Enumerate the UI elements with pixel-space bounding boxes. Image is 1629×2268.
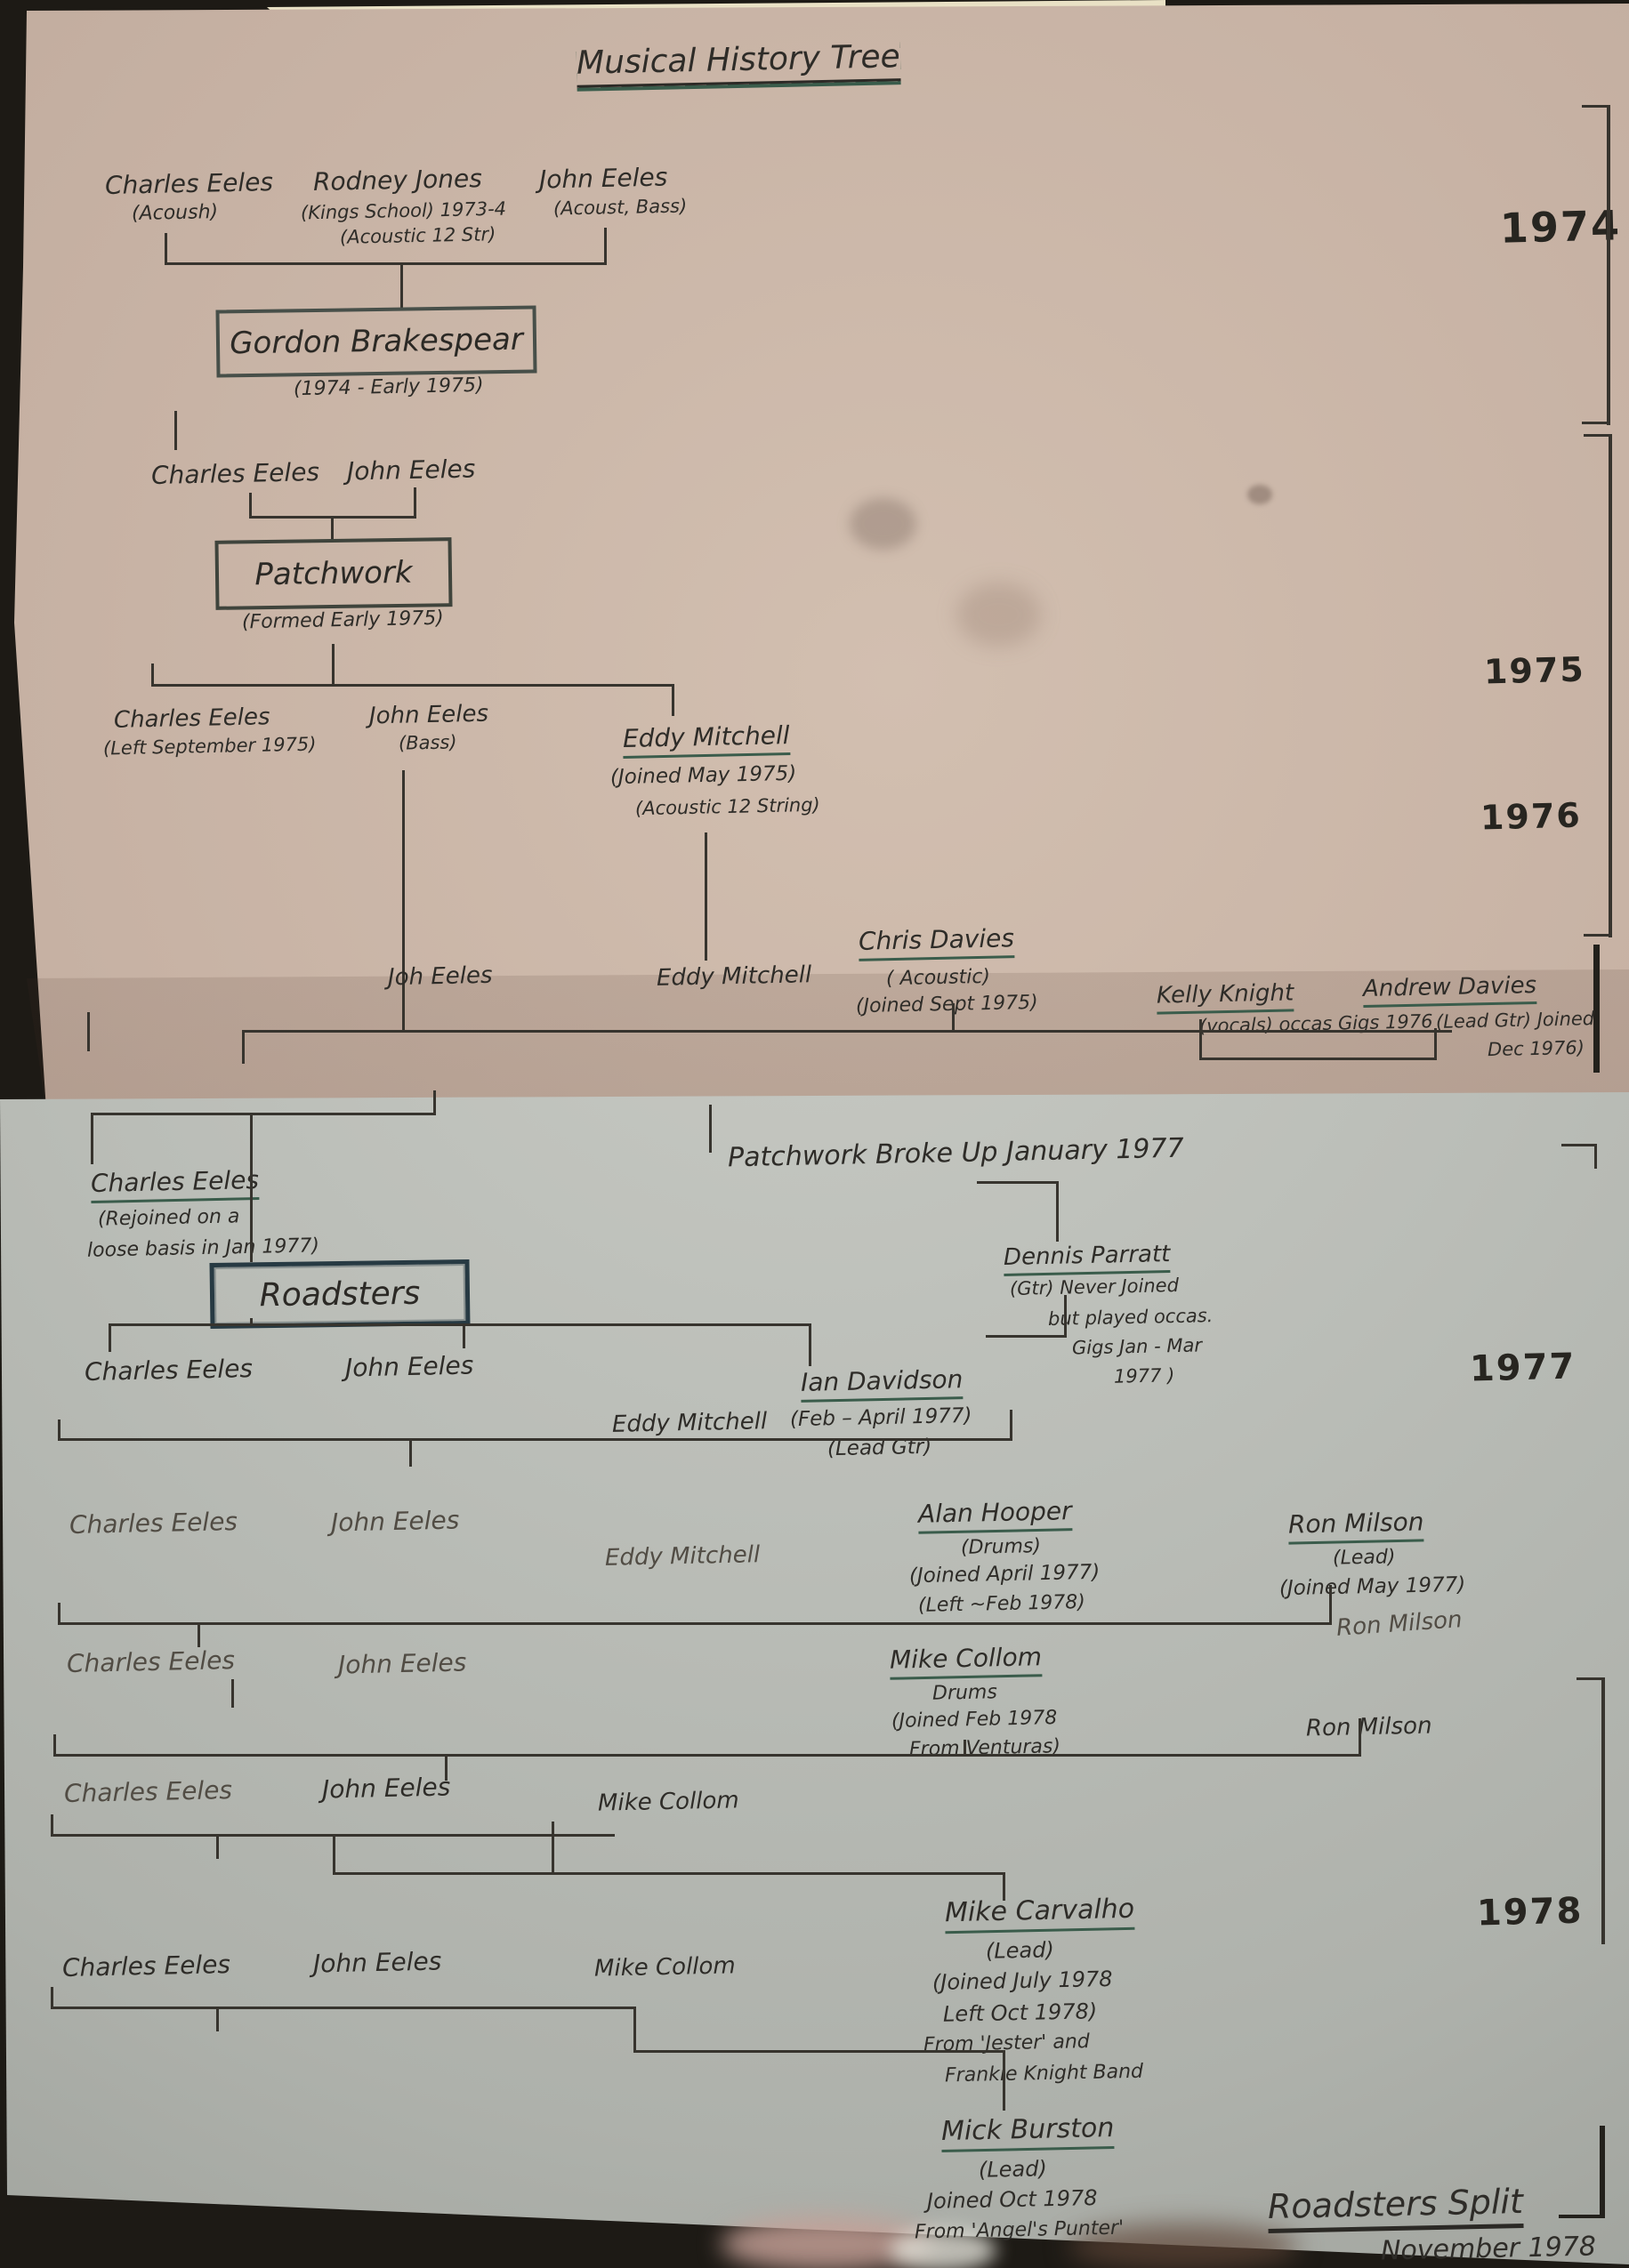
year-bracket — [1600, 2126, 1605, 2218]
connector-line — [333, 1872, 1005, 1875]
member-dennis: Dennis Parratt — [1004, 1242, 1171, 1271]
rowC-charles: Charles Eeles — [67, 1647, 236, 1678]
paper-stain — [1247, 485, 1272, 504]
member-rodney-1974: Rodney Jones — [313, 165, 482, 197]
connector-line — [1056, 1181, 1059, 1242]
member-eddy-1976: Eddy Mitchell — [657, 962, 812, 991]
rowA-eddy: Eddy Mitchell — [612, 1409, 768, 1437]
connector-line — [58, 1603, 60, 1624]
member-dennis-note1: (Gtr) Never Joined — [1010, 1275, 1179, 1299]
year-label-1976: 1976 — [1480, 798, 1582, 838]
member-rodney-1974-note1: (Kings School) 1973-4 — [301, 199, 506, 224]
connector-line — [87, 1012, 90, 1051]
connector-line — [705, 832, 707, 961]
year-bracket — [1609, 434, 1612, 937]
connector-line — [633, 2007, 636, 2053]
rowE-john: John Eeles — [313, 1948, 442, 1978]
roadsters-split-title: Roadsters Split — [1268, 2184, 1524, 2226]
year-label-1975: 1975 — [1483, 652, 1585, 692]
connector-line — [174, 411, 177, 450]
roadsters-split-date: November 1978 — [1381, 2232, 1597, 2265]
connector-line — [952, 1003, 955, 1032]
member-andrew-note2: Dec 1976) — [1488, 1038, 1585, 1060]
rowC-mike: Mike Collom — [890, 1644, 1043, 1674]
rowB-alan-note3: (Left ~Feb 1978) — [918, 1592, 1085, 1617]
member-chris-name: Chris Davies — [859, 923, 1015, 961]
rowD-john: John Eeles — [322, 1773, 451, 1804]
rowB-ron-note1: (Lead) — [1333, 1547, 1396, 1570]
band-box-roadsters: Roadsters — [209, 1259, 470, 1329]
member-alan-name: Alan Hooper — [918, 1496, 1072, 1534]
rowB-john: John Eeles — [331, 1507, 460, 1537]
connector-line — [1359, 1718, 1361, 1756]
member-eddy-1975-name: Eddy Mitchell — [623, 720, 790, 759]
connector-line — [604, 228, 607, 265]
band-name-roadsters: Roadsters — [259, 1275, 420, 1314]
member-john-1975-note: (Bass) — [399, 732, 457, 753]
rowC-mike-note1: Drums — [932, 1682, 997, 1705]
rowC-john: John Eeles — [338, 1649, 467, 1679]
rowA-john: John Eeles — [345, 1352, 474, 1382]
member-john-1975: John Eeles — [369, 702, 489, 729]
connector-line — [402, 1005, 405, 1032]
connector-line — [400, 262, 403, 309]
member-chris-note1: ( Acoustic) — [886, 967, 990, 991]
connector-line — [91, 1113, 436, 1115]
connector-line — [964, 1740, 966, 1756]
band-gordon-dates: (1974 - Early 1975) — [294, 375, 484, 401]
member-carvalho: Mike Carvalho — [945, 1894, 1135, 1927]
rowB-eddy: Eddy Mitchell — [605, 1542, 761, 1571]
member-dennis-note4: 1977 ) — [1114, 1365, 1175, 1387]
connector-line — [58, 1622, 1332, 1625]
year-label-1974: 1974 — [1499, 203, 1621, 251]
rowB-alan-note1: (Drums) — [961, 1536, 1041, 1559]
connector-line — [51, 1987, 53, 2008]
member-charles-1974-note: (Acoush) — [132, 202, 219, 225]
member-charles-rejoin: Charles Eeles — [91, 1167, 260, 1198]
connector-line — [53, 1734, 56, 1756]
member-chris-1976: Chris Davies — [859, 925, 1015, 955]
member-burston-note1: (Lead) — [979, 2157, 1047, 2182]
member-john-1974-note: (Acoust, Bass) — [553, 196, 688, 219]
connector-line — [1199, 1019, 1202, 1060]
member-charles-pre-patchwork: Charles Eeles — [151, 459, 320, 490]
connector-line — [51, 1814, 53, 1836]
connector-line — [151, 684, 674, 687]
member-mike-collom-name: Mike Collom — [890, 1642, 1043, 1680]
member-andrew-1976: Andrew Davies — [1363, 973, 1537, 1002]
member-chris-note2: (Joined Sept 1975) — [856, 993, 1038, 1017]
band-box-gordon-brakespear: Gordon Brakespear — [215, 305, 536, 377]
year-bracket — [1561, 1144, 1597, 1146]
rowE-mike: Mike Collom — [594, 1953, 736, 1982]
year-bracket — [1582, 422, 1609, 424]
year-label-1978: 1978 — [1476, 1891, 1583, 1933]
member-john-1974: John Eeles — [539, 164, 668, 194]
member-carvalho-note2: (Joined July 1978 — [932, 1967, 1113, 1995]
member-charles-rejoin-name: Charles Eeles — [91, 1165, 260, 1203]
member-eddy-1975-note2: (Acoustic 12 String) — [635, 795, 820, 819]
member-burston: Mick Burston — [941, 2113, 1115, 2146]
year-bracket — [1584, 934, 1609, 937]
member-carvalho-note5: Frankie Knight Band — [945, 2062, 1143, 2087]
connector-line — [709, 1105, 712, 1153]
year-bracket — [1593, 945, 1600, 1073]
connector-line — [433, 1090, 436, 1115]
year-bracket — [1601, 1677, 1605, 1944]
connector-line — [109, 1323, 111, 1352]
connector-line — [91, 1113, 93, 1164]
connector-line — [633, 2050, 1005, 2053]
connector-line — [331, 516, 334, 541]
connector-line — [1434, 1028, 1437, 1060]
connector-line — [1003, 2050, 1005, 2111]
member-charles-rejoin-note1: (Rejoined on a — [98, 1206, 240, 1231]
photo-of-handwritten-diagram: Musical History Tree 1974 1975 1976 Char… — [0, 0, 1629, 2268]
rowA-ian: Ian Davidson — [801, 1366, 964, 1397]
connector-line — [242, 1030, 245, 1064]
member-john-1976: Joh Eeles — [388, 963, 493, 991]
year-bracket — [1607, 105, 1610, 425]
member-andrew-name: Andrew Davies — [1363, 972, 1537, 1008]
connector-line — [809, 1323, 811, 1366]
band-name-gordon: Gordon Brakespear — [230, 322, 523, 362]
year-bracket — [1594, 1144, 1597, 1169]
connector-line — [402, 770, 405, 1032]
connector-line — [109, 1323, 811, 1326]
member-carvalho-note3: Left Oct 1978) — [943, 1999, 1098, 2026]
connector-line — [672, 684, 674, 716]
member-kelly-name: Kelly Knight — [1157, 979, 1294, 1014]
connector-line — [552, 1822, 554, 1875]
connector-line — [332, 644, 335, 687]
member-ron-name: Ron Milson — [1288, 1507, 1424, 1544]
member-burston-note2: Joined Oct 1978 — [927, 2186, 1098, 2213]
member-eddy-1975-note1: (Joined May 1975) — [610, 763, 797, 790]
connector-line — [249, 493, 252, 518]
member-carvalho-name: Mike Carvalho — [945, 1894, 1135, 1934]
roadsters-split-text: Roadsters Split — [1268, 2182, 1524, 2233]
connector-line — [231, 1679, 234, 1708]
rowB-ron: Ron Milson — [1288, 1508, 1424, 1539]
connector-line — [58, 1438, 1012, 1441]
rowB-charles: Charles Eeles — [69, 1508, 238, 1540]
connector-line — [414, 487, 416, 518]
member-kelly-1976: Kelly Knight — [1157, 980, 1294, 1009]
year-bracket — [1577, 1677, 1603, 1680]
connector-line — [216, 1834, 219, 1859]
connector-line — [165, 262, 607, 265]
member-burston-name: Mick Burston — [941, 2112, 1115, 2152]
member-charles-1975: Charles Eeles — [114, 704, 270, 733]
connector-line — [1010, 1410, 1012, 1441]
connector-line — [333, 1834, 335, 1874]
connector-line — [1199, 1058, 1436, 1060]
connector-line — [51, 2007, 636, 2009]
year-label-1977: 1977 — [1469, 1347, 1576, 1388]
connector-line — [1329, 1585, 1332, 1624]
connector-line — [977, 1181, 1059, 1184]
rowC-mike-note3: From Venturas) — [909, 1736, 1060, 1761]
connector-line — [53, 1754, 1361, 1757]
member-john-pre-patchwork: John Eeles — [347, 455, 476, 486]
member-dennis-name: Dennis Parratt — [1004, 1241, 1171, 1276]
connector-line — [1064, 1295, 1067, 1338]
rowB-alan-note2: (Joined April 1977) — [909, 1562, 1101, 1588]
band-patchwork-dates: (Formed Early 1975) — [242, 608, 444, 634]
rowD-mike: Mike Collom — [598, 1788, 739, 1816]
member-charles-1974: Charles Eeles — [105, 169, 274, 200]
year-bracket — [1559, 2215, 1601, 2218]
rowB-ron-note2: (Joined May 1977) — [1279, 1574, 1466, 1601]
connector-line — [250, 1113, 253, 1262]
member-dennis-note2: but played occas. — [1048, 1306, 1214, 1330]
rowA-ian-note1: (Feb – April 1977) — [790, 1405, 972, 1432]
connector-line — [986, 1335, 1066, 1338]
connector-line — [198, 1622, 200, 1647]
connector-line — [409, 1438, 412, 1467]
band-name-patchwork: Patchwork — [254, 555, 413, 592]
member-eddy-1975: Eddy Mitchell — [623, 722, 790, 753]
paper-stain — [956, 583, 1041, 647]
page-title-text: Musical History Tree — [577, 38, 901, 88]
rowC-mike-note2: (Joined Feb 1978 — [891, 1708, 1058, 1733]
connector-line — [58, 1420, 60, 1441]
paper-stain — [850, 498, 916, 550]
rowA-charles: Charles Eeles — [85, 1355, 254, 1387]
connector-line — [463, 1323, 465, 1348]
member-dennis-note3: Gigs Jan - Mar — [1072, 1335, 1202, 1358]
member-burston-note3: From 'Angel's Punter' — [915, 2218, 1125, 2244]
member-rodney-1974-note2: (Acoustic 12 Str) — [340, 224, 496, 248]
member-andrew-note1: (Lead Gtr) Joined — [1436, 1009, 1595, 1033]
member-carvalho-note1: (Lead) — [986, 1938, 1054, 1963]
page-title: Musical History Tree — [577, 39, 900, 81]
year-bracket — [1584, 434, 1609, 437]
member-ian-name: Ian Davidson — [801, 1364, 964, 1403]
rowC-ron: Ron Milson — [1306, 1714, 1432, 1742]
rowE-charles: Charles Eeles — [62, 1951, 231, 1982]
connector-line — [165, 233, 167, 265]
connector-line — [216, 2007, 219, 2031]
connector-line — [242, 1030, 1452, 1033]
year-bracket — [1582, 105, 1609, 108]
rowD-charles: Charles Eeles — [64, 1777, 233, 1808]
band-box-patchwork: Patchwork — [214, 537, 452, 610]
rowB-alan: Alan Hooper — [918, 1498, 1072, 1528]
